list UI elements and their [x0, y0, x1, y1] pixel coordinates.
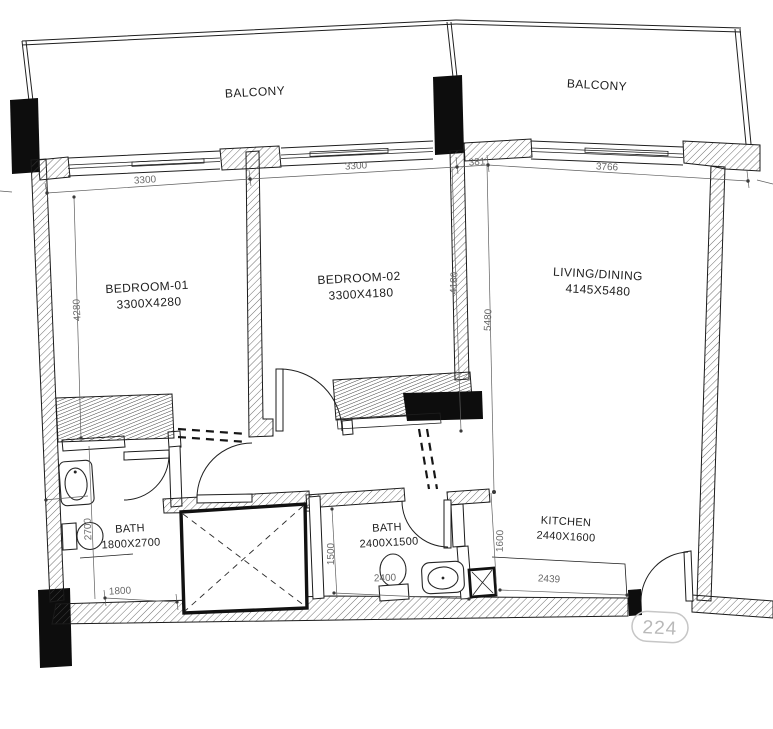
- bath2-size: 2400X1500: [359, 535, 419, 550]
- bed2-door-jamb: [342, 420, 353, 435]
- living-size: 4145X5480: [565, 281, 631, 298]
- window-bedroom1: [68, 151, 220, 176]
- balcony-left-label: BALCONY: [225, 83, 286, 100]
- pier-d: [683, 141, 760, 171]
- bath2-right-jamb: [451, 504, 465, 547]
- dim-living-depth: 5480: [483, 308, 495, 331]
- drain-box: [469, 568, 496, 597]
- door-swing-arc: [197, 443, 252, 498]
- door-swing-arc: [641, 552, 688, 601]
- vanity-line-bath1: [80, 554, 133, 558]
- bath1-size: 1800X2700: [101, 536, 161, 551]
- door-swing-arc: [280, 369, 342, 431]
- kitchen-wall-stub: [447, 489, 490, 505]
- unit-number-badge: 224: [631, 611, 688, 644]
- column-wardrobe2: [403, 391, 483, 421]
- door-bedroom2: [276, 369, 342, 431]
- shaft-box: [181, 504, 307, 613]
- pier-a: [38, 157, 70, 180]
- bath2-left-wall: [309, 496, 324, 599]
- dim-bed2-depth: 4180: [449, 271, 461, 294]
- entry-left-jamb: [628, 589, 642, 616]
- door-bedroom1: [197, 443, 252, 503]
- kitchen-size: 2440X1600: [536, 529, 596, 544]
- right-wall: [697, 166, 725, 601]
- kitchen-label: KITCHEN: [540, 515, 591, 530]
- dim-bath2-depth: 1500: [326, 542, 337, 565]
- bedroom2-label: BEDROOM-02: [317, 269, 401, 287]
- bathtub: [59, 460, 95, 506]
- door-entry: [641, 551, 693, 601]
- dim-kitchen-depth: 1600: [495, 529, 506, 552]
- column-top-center: [433, 75, 464, 155]
- unit-number: 224: [642, 617, 678, 640]
- door-bath1: [124, 450, 169, 500]
- bottom-wall-right: [692, 595, 773, 618]
- dim-living-width: 3766: [596, 161, 619, 173]
- windows: [68, 141, 683, 176]
- dashed-bulkheads: [178, 429, 437, 489]
- floor-plan-page: BALCONY BALCONY BEDROOM-01 3300X4280 BED…: [0, 0, 773, 729]
- room-labels: BALCONY BALCONY BEDROOM-01 3300X4280 BED…: [101, 76, 643, 551]
- floor-plan-canvas: BALCONY BALCONY BEDROOM-01 3300X4280 BED…: [0, 0, 773, 729]
- wardrobe-bedroom1: [56, 394, 174, 442]
- dim-living-offset: 381: [468, 156, 486, 168]
- dim-bath2-width: 2400: [374, 573, 397, 585]
- bedroom1-label: BEDROOM-01: [105, 278, 189, 296]
- dim-bed1-width: 3300: [134, 174, 157, 187]
- bedroom1-size: 3300X4280: [116, 294, 182, 311]
- bedroom2-size: 3300X4180: [328, 285, 394, 302]
- dim-bath1-width: 1800: [109, 585, 132, 597]
- bath2-label: BATH: [372, 521, 402, 535]
- dim-bed1-depth: 4280: [71, 298, 83, 321]
- balcony-right-label: BALCONY: [567, 76, 628, 93]
- dim-bath1-depth: 2700: [83, 517, 95, 540]
- sink-bath2: [421, 561, 465, 594]
- dim-bed2-width: 3300: [345, 160, 368, 173]
- left-wall: [31, 159, 64, 602]
- door-swing-arc: [124, 455, 169, 500]
- wall-bed1-bed2: [246, 151, 273, 437]
- bath1-label: BATH: [115, 522, 145, 536]
- dim-kitchen-width: 2439: [538, 573, 561, 585]
